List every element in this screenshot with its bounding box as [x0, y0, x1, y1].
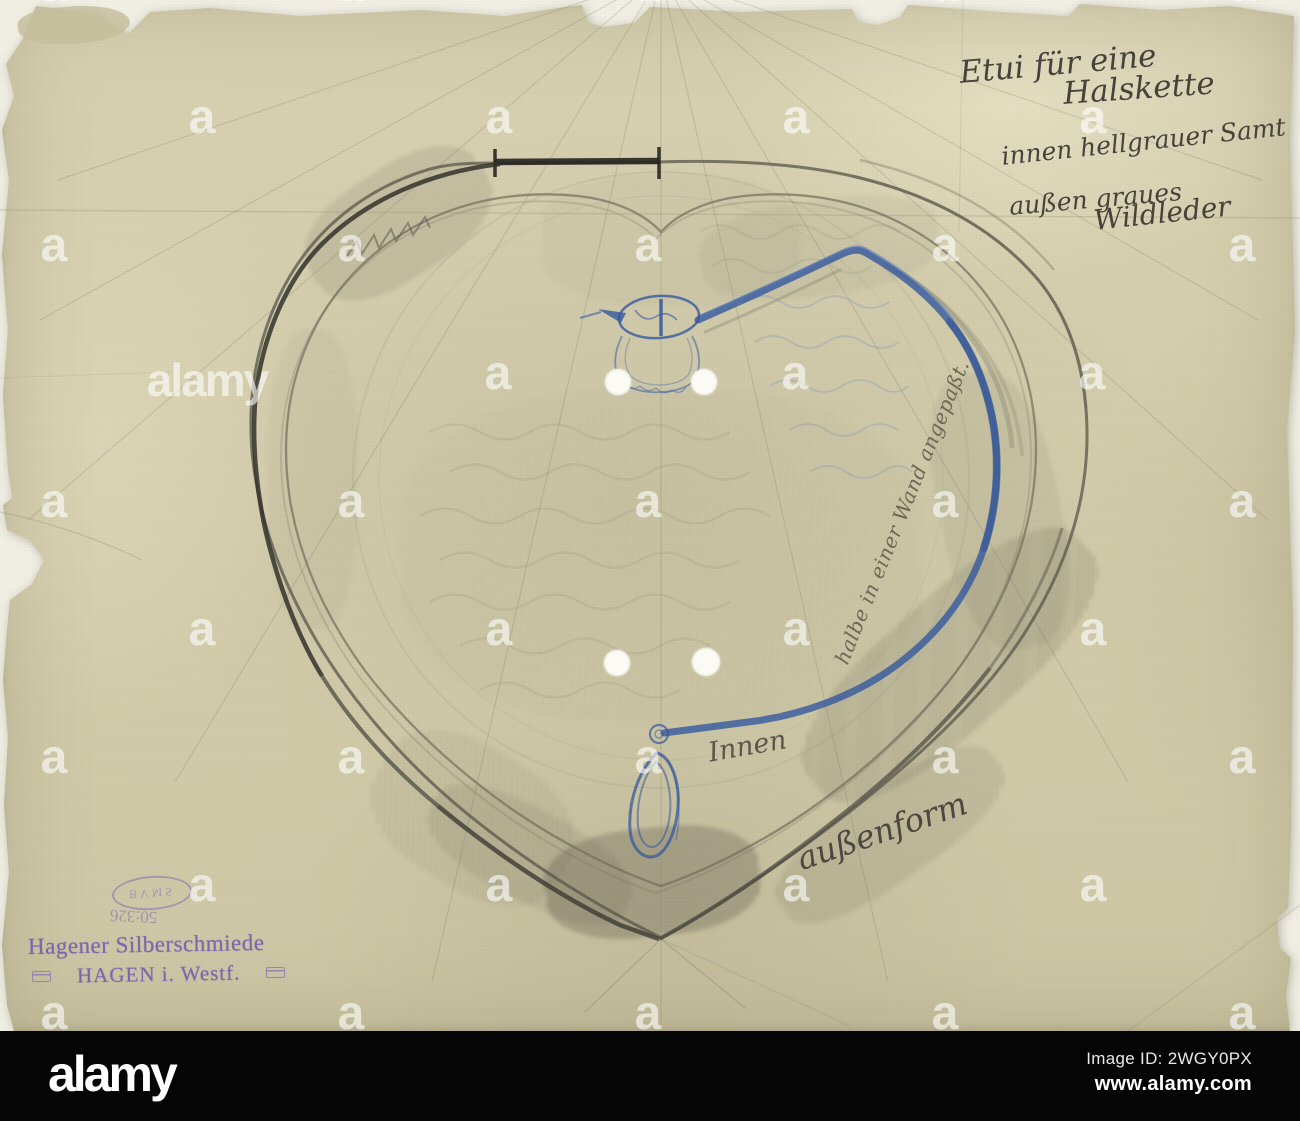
punch-hole	[604, 650, 630, 676]
pendant-drop	[630, 753, 679, 857]
zigzag-squiggle	[346, 217, 430, 258]
punch-hole	[692, 648, 720, 676]
necklace-clasp	[580, 293, 700, 340]
scanned-drawing: Etui für eine Halskette innen hellgrauer…	[0, 0, 1300, 1031]
punch-hole	[605, 369, 631, 395]
image-id-text: Image ID: 2WGY0PX	[1086, 1049, 1252, 1069]
stamp-ornament-icon	[32, 971, 51, 982]
stamp-ornament-icon	[266, 967, 285, 978]
maker-stamp-city: HAGEN i. Westf.	[77, 961, 241, 989]
bottom-point-lines	[585, 939, 850, 1026]
maker-stamp-line1: Hagener Silberschmiede	[28, 930, 265, 960]
blue-scribbles	[745, 296, 912, 478]
alamy-url-text: www.alamy.com	[1086, 1073, 1252, 1096]
maker-stamp-line2: HAGEN i. Westf.	[32, 960, 286, 989]
inventory-number-stamp: 50:326	[110, 905, 158, 927]
punch-hole	[691, 369, 717, 395]
alamy-footer-bar: alamy Image ID: 2WGY0PX www.alamy.com	[0, 1031, 1300, 1121]
alamy-logo: alamy	[48, 1045, 175, 1103]
